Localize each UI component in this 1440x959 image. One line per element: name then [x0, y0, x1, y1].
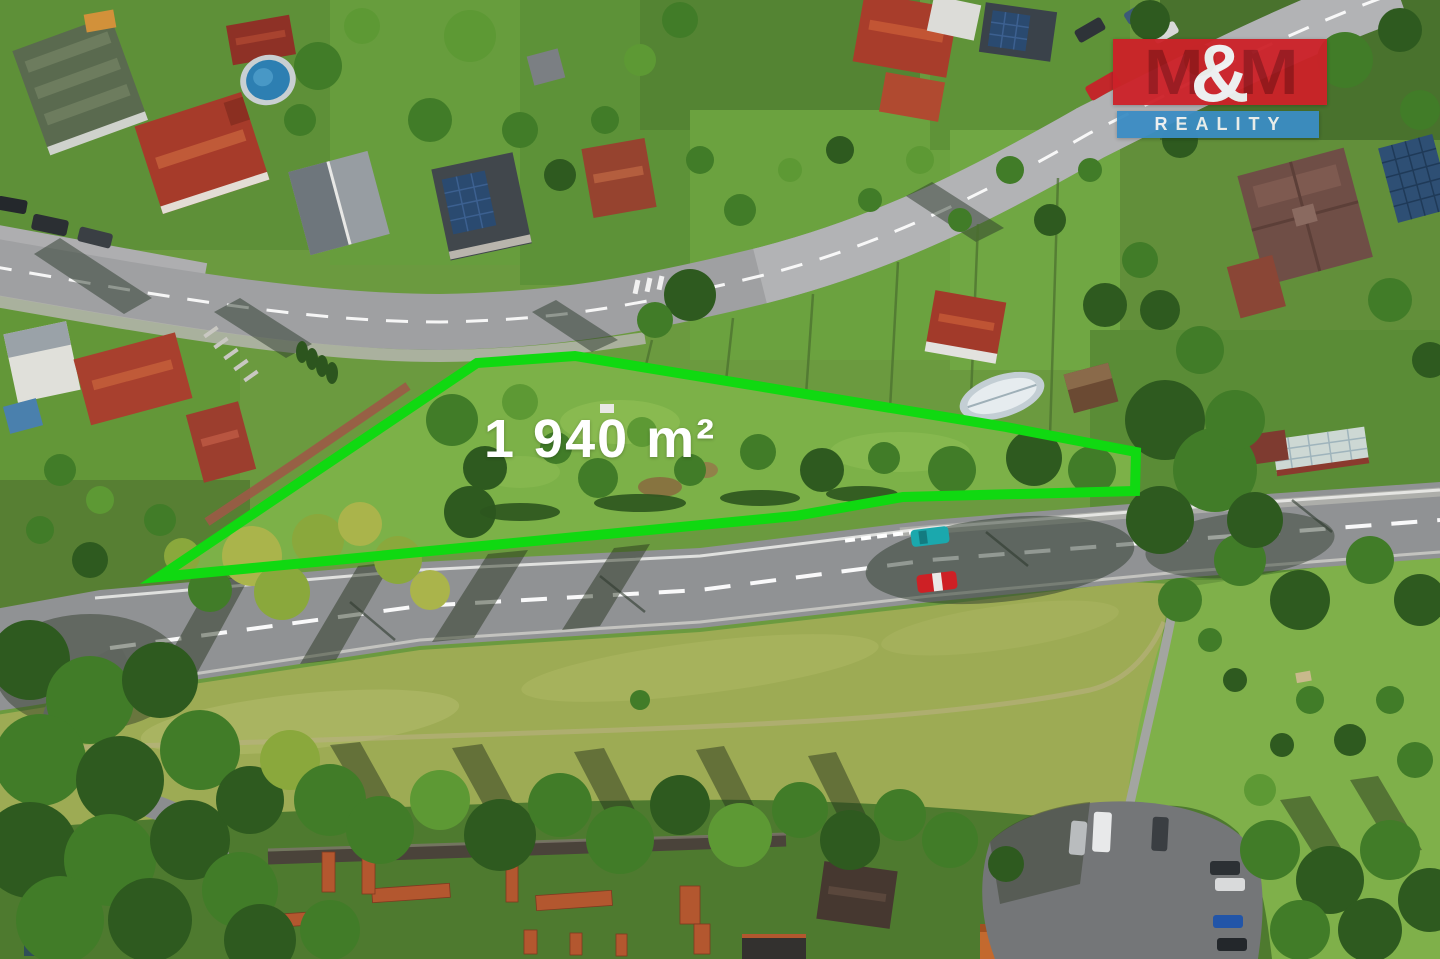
agency-logo: M & M REALITY [1113, 39, 1327, 132]
real-estate-aerial-listing-photo: 1 940 m² M & M REALITY [0, 0, 1440, 959]
plot-area-label: 1 940 m² [484, 408, 716, 470]
parking-lot [982, 801, 1262, 959]
house-north-of-plot [925, 290, 1007, 364]
house-brown-roof [581, 138, 656, 218]
aerial-photo [0, 0, 1440, 959]
logo-ampersand: & [1190, 33, 1249, 115]
agency-logo-mark: M & M [1113, 39, 1327, 105]
